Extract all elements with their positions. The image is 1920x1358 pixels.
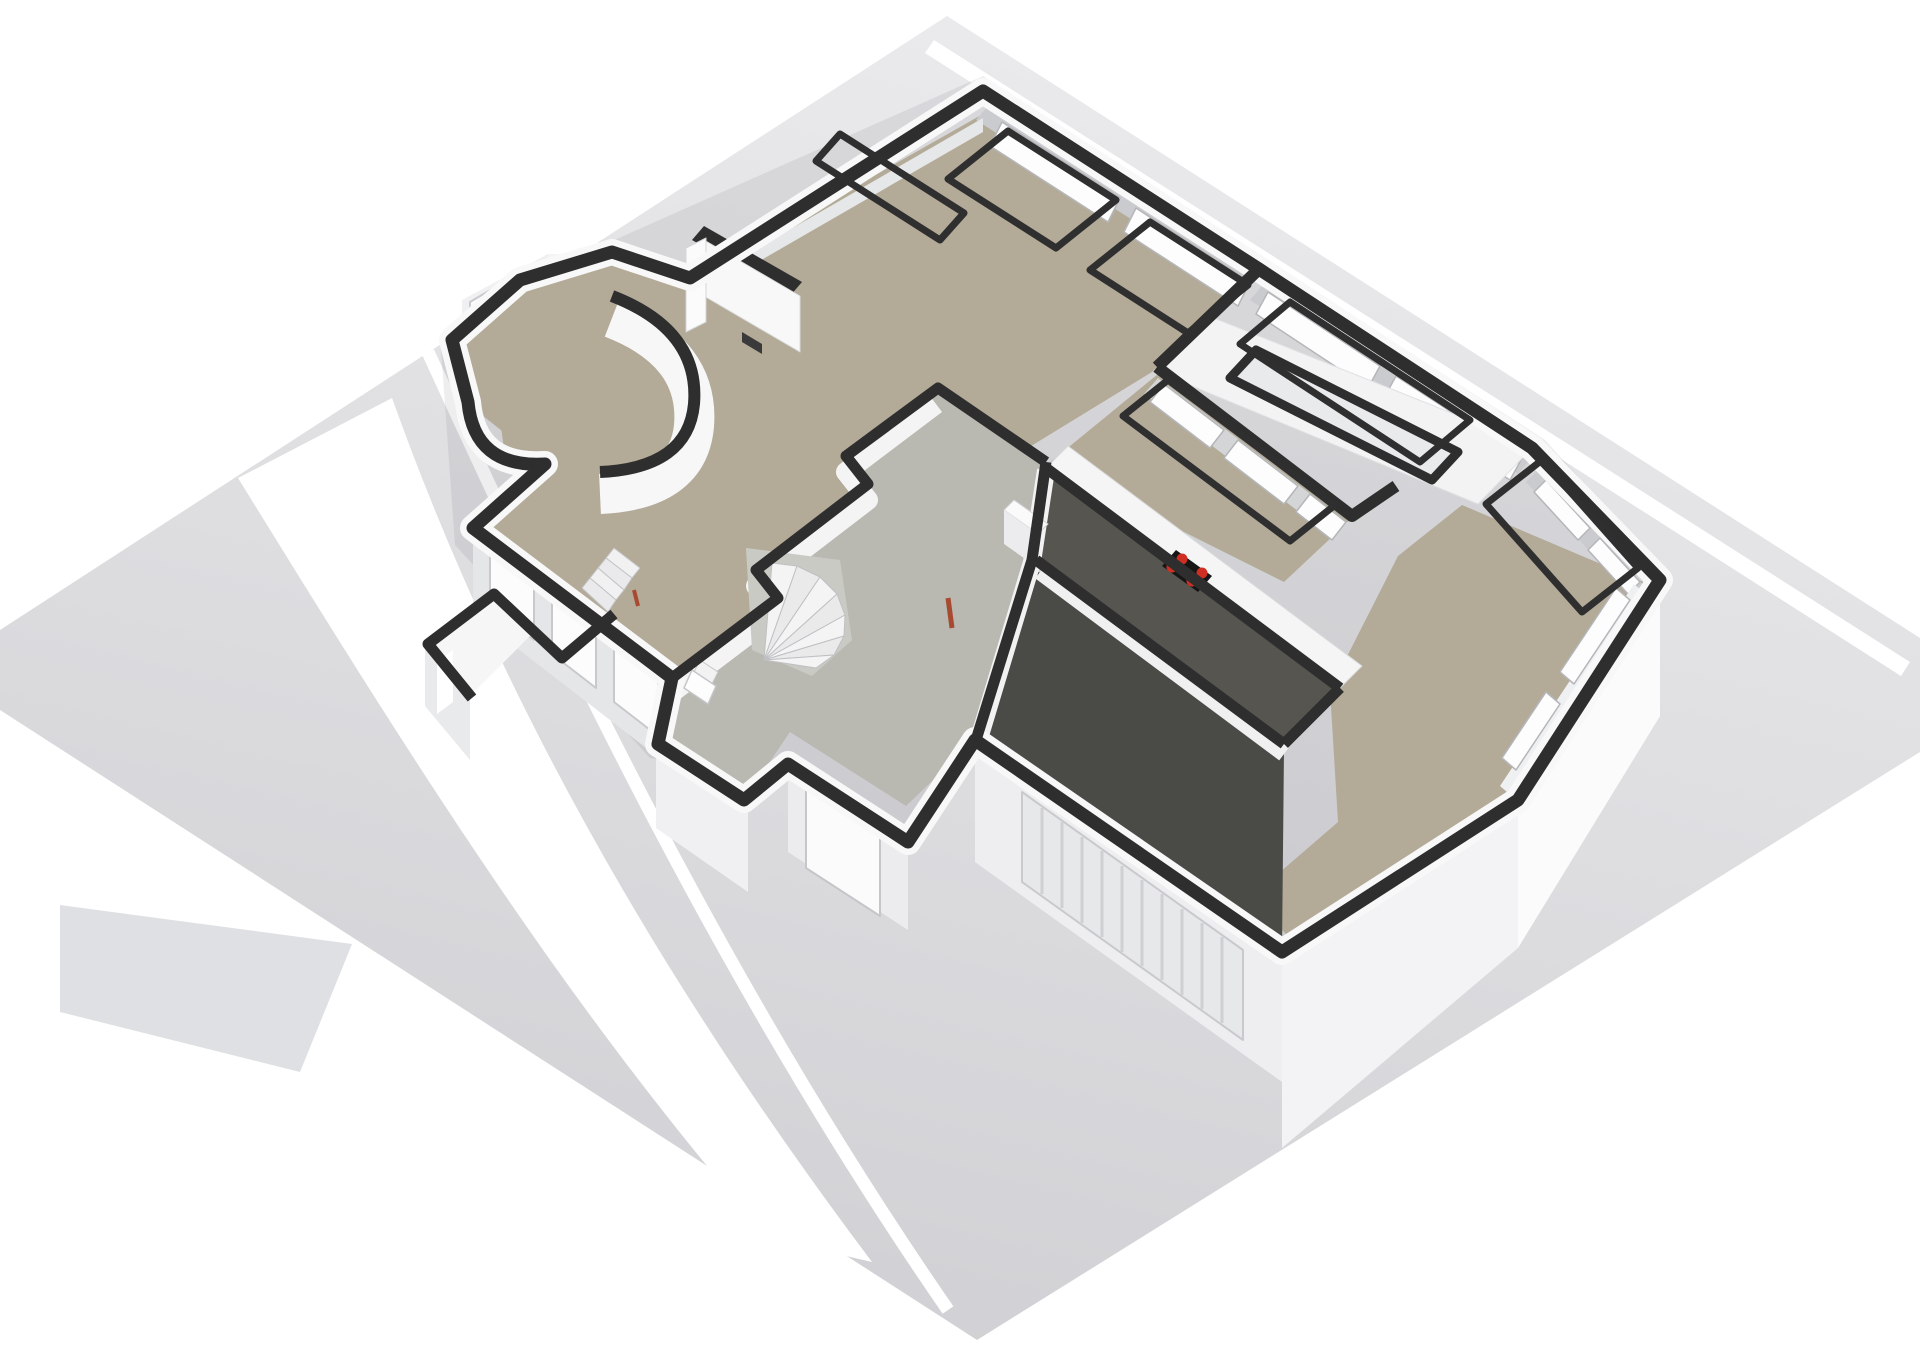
floor-plan-canvas bbox=[0, 0, 1920, 1358]
shape-layer bbox=[0, 16, 1920, 1340]
ground-triangle bbox=[60, 905, 352, 1072]
floor-plan-svg bbox=[0, 0, 1920, 1358]
